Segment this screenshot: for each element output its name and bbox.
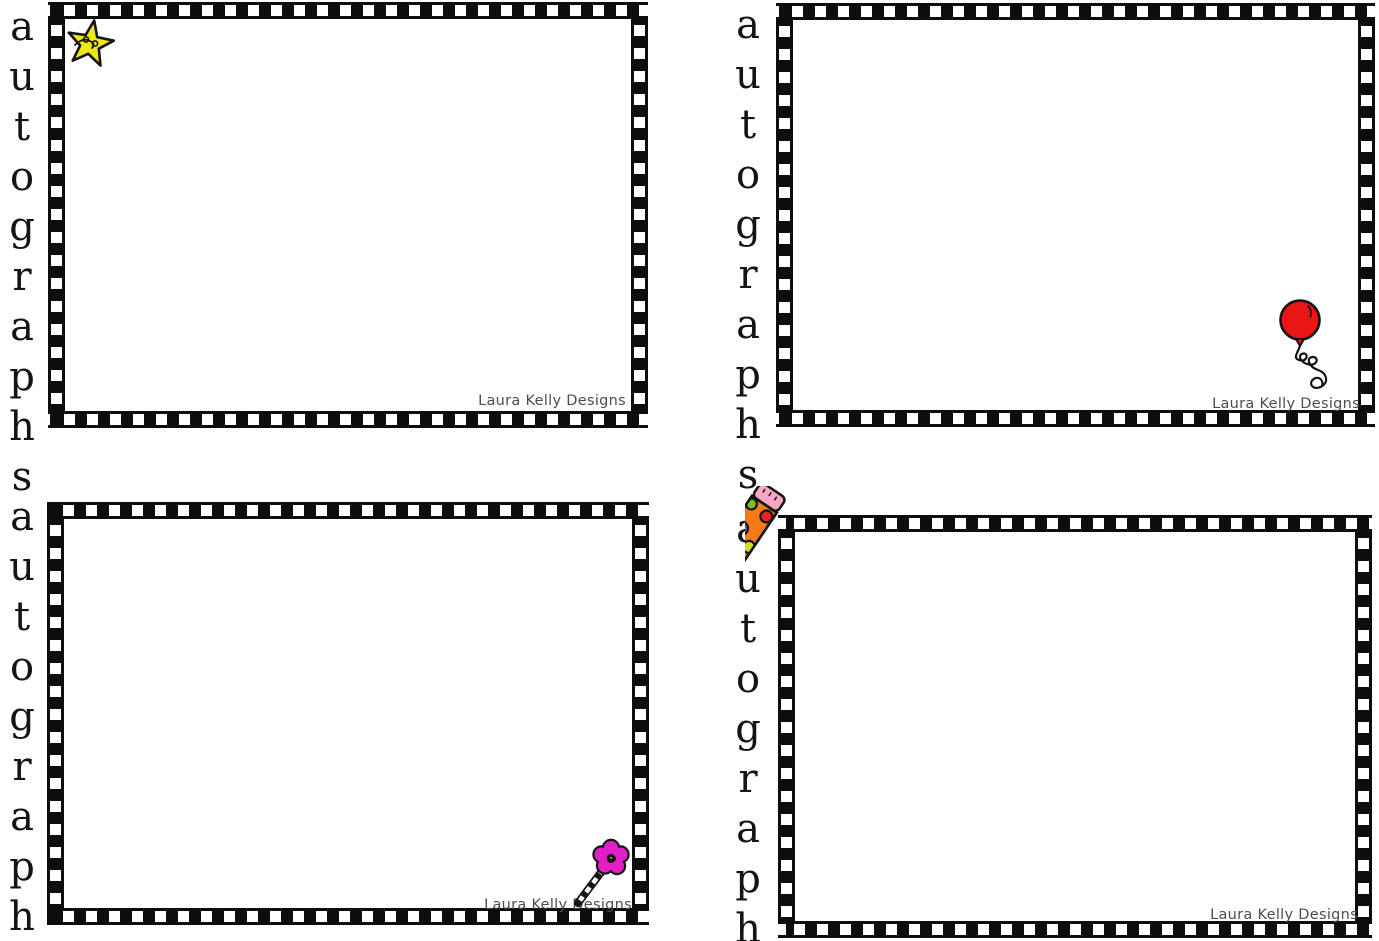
autographs-vertical-title: autographs <box>724 2 768 502</box>
checkered-border-top <box>776 3 1375 20</box>
checkered-border-bottom <box>776 410 1375 427</box>
flower-wand-icon <box>565 838 639 912</box>
checkered-border-right <box>631 19 648 411</box>
checkered-border-bottom <box>778 921 1372 938</box>
checkered-border-right <box>1358 20 1375 410</box>
autographs-vertical-title: autographs <box>0 494 42 941</box>
autograph-cards-sheet: autographs Laura Kelly Designs autograph… <box>0 0 1379 941</box>
autographs-vertical-title: autographs <box>0 4 42 504</box>
checkered-border-right <box>1355 532 1372 921</box>
pencil-icon <box>745 486 850 611</box>
checkered-border-top <box>48 2 648 19</box>
checkered-border-top <box>778 515 1372 532</box>
checkered-border-left <box>47 519 64 908</box>
designer-credit: Laura Kelly Designs <box>478 393 626 409</box>
autograph-card: Laura Kelly Designs <box>47 502 649 925</box>
designer-credit: Laura Kelly Designs <box>1210 907 1358 923</box>
balloon-icon <box>1264 294 1354 400</box>
checkered-border-left <box>48 19 65 411</box>
checkered-border-top <box>47 502 649 519</box>
autograph-card: Laura Kelly Designs <box>48 2 648 428</box>
autograph-card: Laura Kelly Designs <box>778 515 1372 938</box>
star-icon <box>62 18 120 70</box>
checkered-border-left <box>776 20 793 410</box>
checkered-border-bottom <box>48 411 648 428</box>
